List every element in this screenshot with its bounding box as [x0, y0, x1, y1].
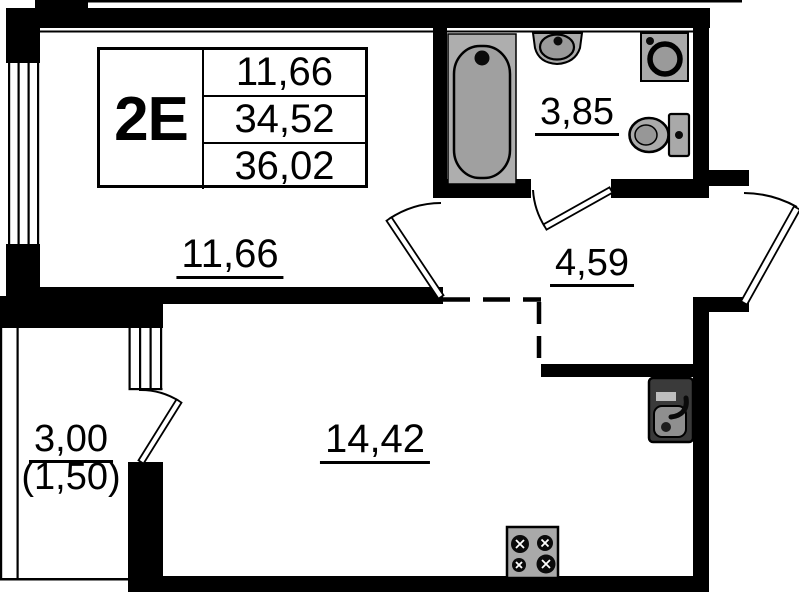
wall-bottom [128, 576, 709, 592]
top-thin-line [35, 0, 742, 3]
door-swing-arc [139, 390, 179, 401]
kitchen-sink [649, 378, 693, 442]
unit-type-label: 2E [100, 50, 204, 189]
wall-balcony-top [0, 296, 163, 328]
area-label-balcony-reduced: (1,50) [21, 458, 120, 497]
wall-right-lower [693, 297, 709, 592]
kitchen-sink-drain [661, 422, 671, 432]
bathtub-basin [454, 46, 510, 178]
window-balcony [129, 326, 163, 390]
area-value: (1,50) [21, 456, 120, 498]
kitchen-sink-drainboard [656, 392, 676, 401]
balcony-glazing-line [0, 328, 2, 580]
floor-plan: 2E 11,66 34,52 36,02 11,66 3,85 4,59 14,… [0, 0, 799, 600]
area-value: 3,85 [535, 93, 619, 136]
area-label-living-room: 11,66 [176, 234, 283, 279]
window-left [6, 63, 42, 244]
wash-basin-faucet [554, 37, 563, 46]
area-label-hallway: 4,59 [550, 244, 634, 287]
wall-top [6, 8, 710, 28]
wall-right-upper [693, 8, 709, 186]
washing-machine-drum [650, 44, 680, 74]
wall-balcony-partition [128, 462, 163, 592]
balcony-glazing-line [17, 328, 19, 580]
door-living-room [387, 203, 444, 299]
toilet-button [675, 131, 683, 139]
door-swing-arc [533, 190, 545, 227]
toilet [630, 114, 690, 156]
area-label-kitchen-living-room: 14,42 [320, 419, 430, 464]
area-value: 4,59 [550, 244, 634, 287]
washing-machine-knob [646, 37, 654, 45]
top-wall-inner-edge [40, 31, 693, 33]
entrance-flange-top [693, 170, 749, 186]
area-value: 14,42 [320, 419, 430, 464]
window-left-line [18, 63, 20, 244]
window-balcony-line [160, 326, 162, 390]
door-leaf [387, 217, 444, 298]
door-leaf [544, 187, 613, 229]
door-bathroom [533, 187, 613, 229]
area-value: 11,66 [176, 234, 283, 279]
window-balcony-line [139, 326, 141, 390]
door-entrance [741, 193, 799, 305]
title-block-total-area: 36,02 [204, 144, 365, 189]
window-left-line [28, 63, 30, 244]
title-block: 2E 11,66 34,52 36,02 [97, 47, 368, 188]
window-left-opening [6, 63, 42, 244]
window-balcony-line [150, 326, 152, 390]
bathtub [448, 34, 516, 184]
toilet-bowl-inner [635, 125, 657, 145]
door-swing-arc [389, 203, 441, 219]
wall-bathroom-left [433, 28, 447, 198]
door-leaf [741, 206, 799, 304]
area-label-bathroom: 3,85 [535, 93, 619, 136]
window-left-line [37, 63, 39, 244]
title-block-living-area: 11,66 [204, 50, 365, 97]
wall-left-upper [6, 28, 40, 66]
door-swing-arc [744, 193, 797, 207]
dashed-boundary [443, 300, 541, 365]
balcony-glazing [0, 328, 19, 580]
stove [507, 527, 558, 578]
top-left-wall-stub [35, 0, 88, 8]
window-balcony-line [129, 326, 131, 390]
bathtub-drain [475, 51, 490, 66]
door-leaf [139, 399, 182, 463]
wash-basin [533, 33, 582, 64]
door-balcony [139, 390, 182, 464]
window-left-line [8, 63, 10, 244]
wall-hallway-bottom [541, 364, 709, 377]
washing-machine [641, 33, 688, 81]
title-block-area-without-balcony: 34,52 [204, 97, 365, 144]
balcony-bottom-line [0, 578, 130, 581]
